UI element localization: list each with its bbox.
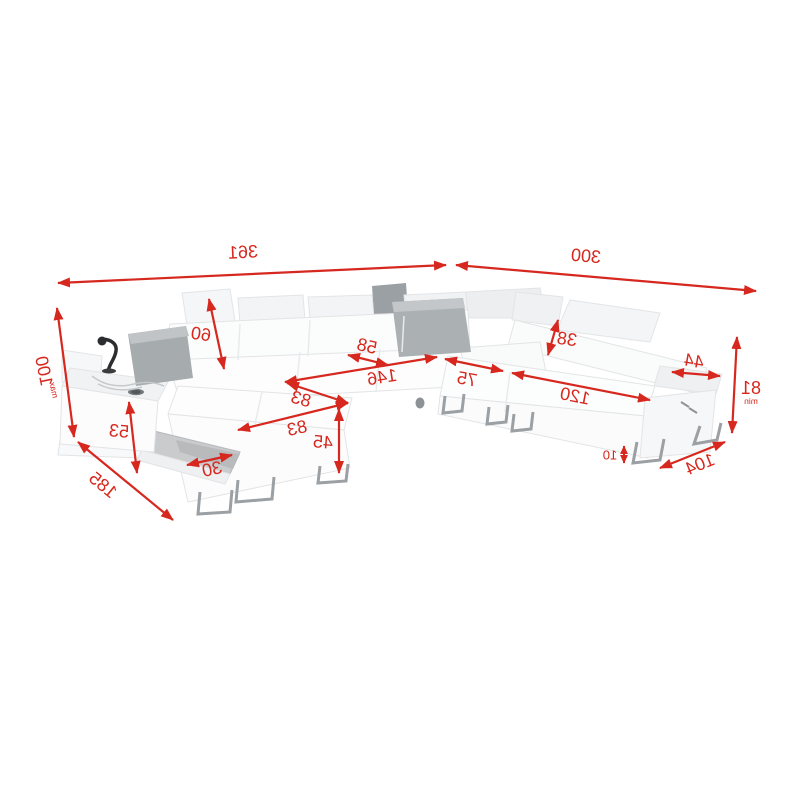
dimension-label-console-height: 53 (108, 420, 130, 442)
dimension-label-height-min: 81 (741, 378, 761, 398)
armrest-top (654, 366, 722, 394)
dimension-diagram: 361 300 100 max 60 53 185 30 (0, 0, 800, 800)
dimension-arrow (58, 265, 446, 283)
dimension-total-length: 361 (58, 241, 446, 283)
dimension-height-min: 81 min (732, 337, 761, 433)
dimension-label-front-height: 45 (312, 431, 334, 453)
dimension-label-total-depth: 300 (570, 245, 602, 268)
sofa-illustration (58, 283, 722, 514)
cup-holder-inner (131, 390, 141, 394)
dimension-label-backrest-height: 60 (190, 323, 213, 346)
dimension-label-armrest-width: 44 (682, 349, 705, 372)
dimension-total-depth: 300 (456, 245, 756, 291)
dimension-label-storage-opening-width: 30 (200, 457, 224, 481)
ottoman-end-panel (640, 390, 716, 458)
dimension-arrow (456, 265, 756, 291)
dimension-label-height-max-note: max (47, 380, 60, 399)
dimension-label-headrest-height: 38 (556, 328, 579, 351)
dimension-label-total-length: 361 (227, 241, 258, 263)
dimension-label-seat-width: 75 (455, 367, 478, 390)
sofa-dimension-drawing: 361 300 100 max 60 53 185 30 (0, 0, 800, 800)
caster-wheel (416, 398, 425, 409)
dimension-label-height-min-note: min (744, 396, 758, 406)
dimension-arrow (732, 337, 737, 433)
dimension-label-leg-height: 10 (603, 448, 617, 463)
